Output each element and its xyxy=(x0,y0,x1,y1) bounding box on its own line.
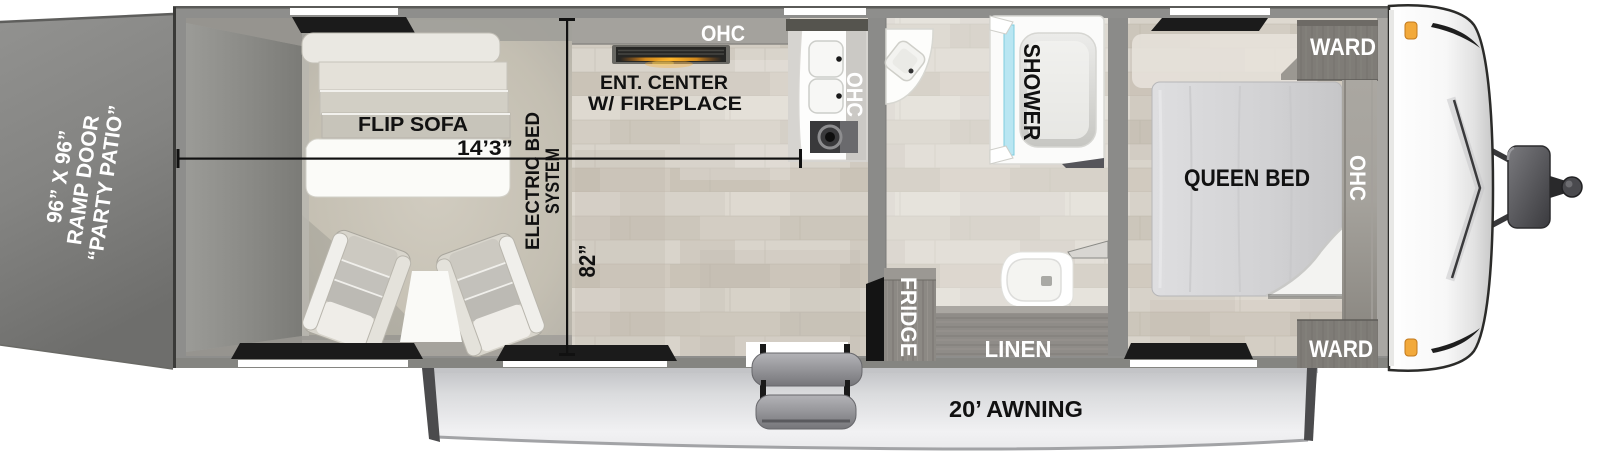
svg-text:ELECTRIC BED: ELECTRIC BED xyxy=(522,112,544,250)
svg-text:OHC: OHC xyxy=(842,72,867,117)
svg-text:SYSTEM: SYSTEM xyxy=(542,148,564,214)
svg-text:FRIDGE: FRIDGE xyxy=(896,277,921,357)
svg-text:82”: 82” xyxy=(574,245,600,278)
svg-text:ENT. CENTER: ENT. CENTER xyxy=(600,72,728,94)
svg-text:OHC: OHC xyxy=(1345,155,1370,201)
svg-text:LINEN: LINEN xyxy=(985,336,1052,362)
svg-text:SHOWER: SHOWER xyxy=(1019,44,1045,141)
svg-text:W/ FIREPLACE: W/ FIREPLACE xyxy=(588,93,742,115)
svg-text:20’ AWNING: 20’ AWNING xyxy=(949,396,1083,422)
svg-text:14’3”: 14’3” xyxy=(457,136,513,160)
svg-text:WARD: WARD xyxy=(1310,34,1376,61)
svg-text:QUEEN BED: QUEEN BED xyxy=(1184,165,1310,192)
svg-text:OHC: OHC xyxy=(701,21,745,46)
svg-text:WARD: WARD xyxy=(1309,336,1373,363)
svg-text:FLIP SOFA: FLIP SOFA xyxy=(358,113,468,136)
